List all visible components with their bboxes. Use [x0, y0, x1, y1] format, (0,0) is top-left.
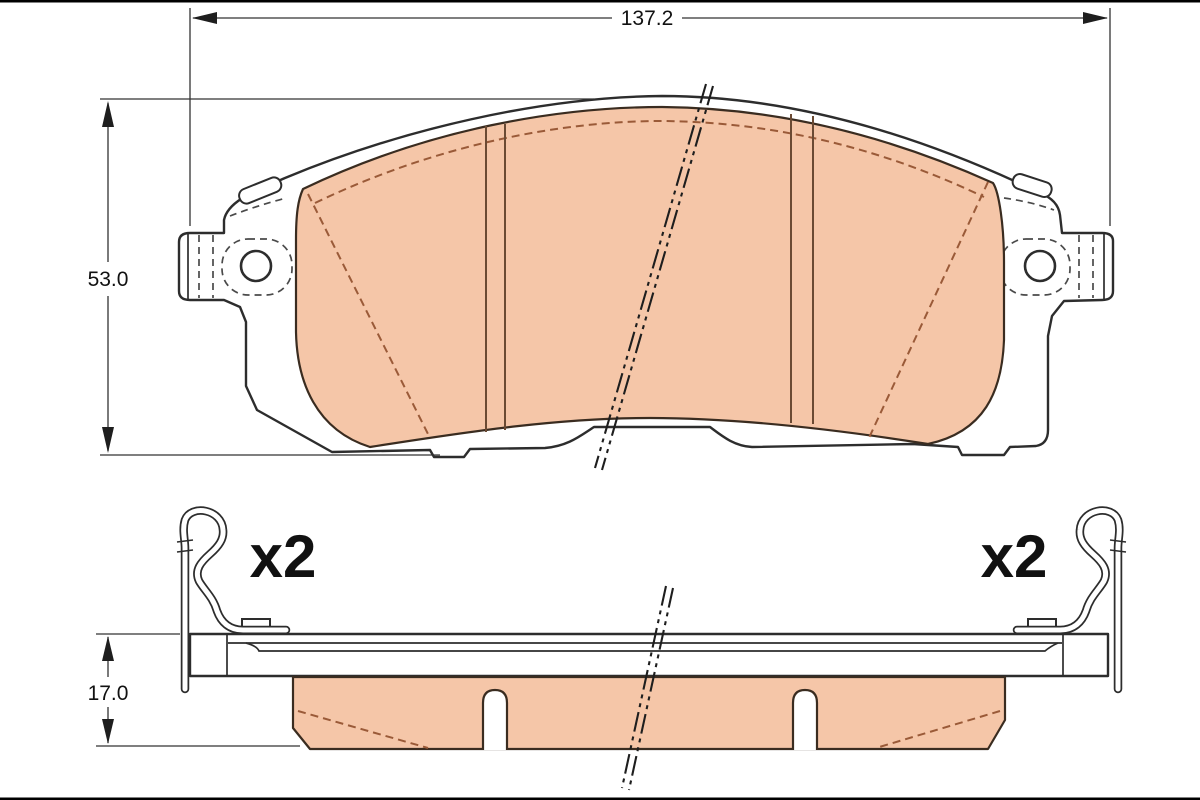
width-arrowhead-right	[1083, 12, 1108, 24]
front-view	[179, 84, 1113, 470]
frame-border-top	[0, 0, 1200, 3]
brake-pad-technical-drawing: x2 x2 137.2 53.0 17.0	[0, 0, 1200, 800]
spring-clip-left-crimp-2	[177, 550, 193, 552]
mounting-hole-right	[1025, 251, 1055, 281]
height-arrowhead-bottom	[102, 427, 114, 453]
thickness-arrowhead-top	[102, 636, 114, 661]
side-view: x2 x2	[177, 511, 1126, 790]
thickness-dimension-value: 17.0	[88, 682, 129, 705]
spring-clip-right-crimp-2	[1110, 550, 1126, 552]
drawing-canvas: x2 x2 137.2 53.0 17.0	[0, 0, 1200, 800]
thickness-arrowhead-bottom	[102, 719, 114, 744]
spring-clip-right-crimp-1	[1110, 540, 1126, 542]
width-dimension-value: 137.2	[621, 7, 674, 30]
friction-material-side	[293, 677, 1005, 749]
height-arrowhead-top	[102, 101, 114, 127]
backing-plate-side	[190, 634, 1108, 676]
friction-slot-side-right	[793, 690, 817, 750]
height-dimension-value: 53.0	[88, 268, 129, 291]
friction-slot-side-left	[483, 690, 507, 750]
quantity-label-right: x2	[981, 523, 1048, 590]
spring-clip-left-crimp-1	[177, 540, 193, 542]
quantity-label-left: x2	[250, 523, 317, 590]
mounting-hole-left	[241, 251, 271, 281]
width-arrowhead-left	[192, 12, 217, 24]
